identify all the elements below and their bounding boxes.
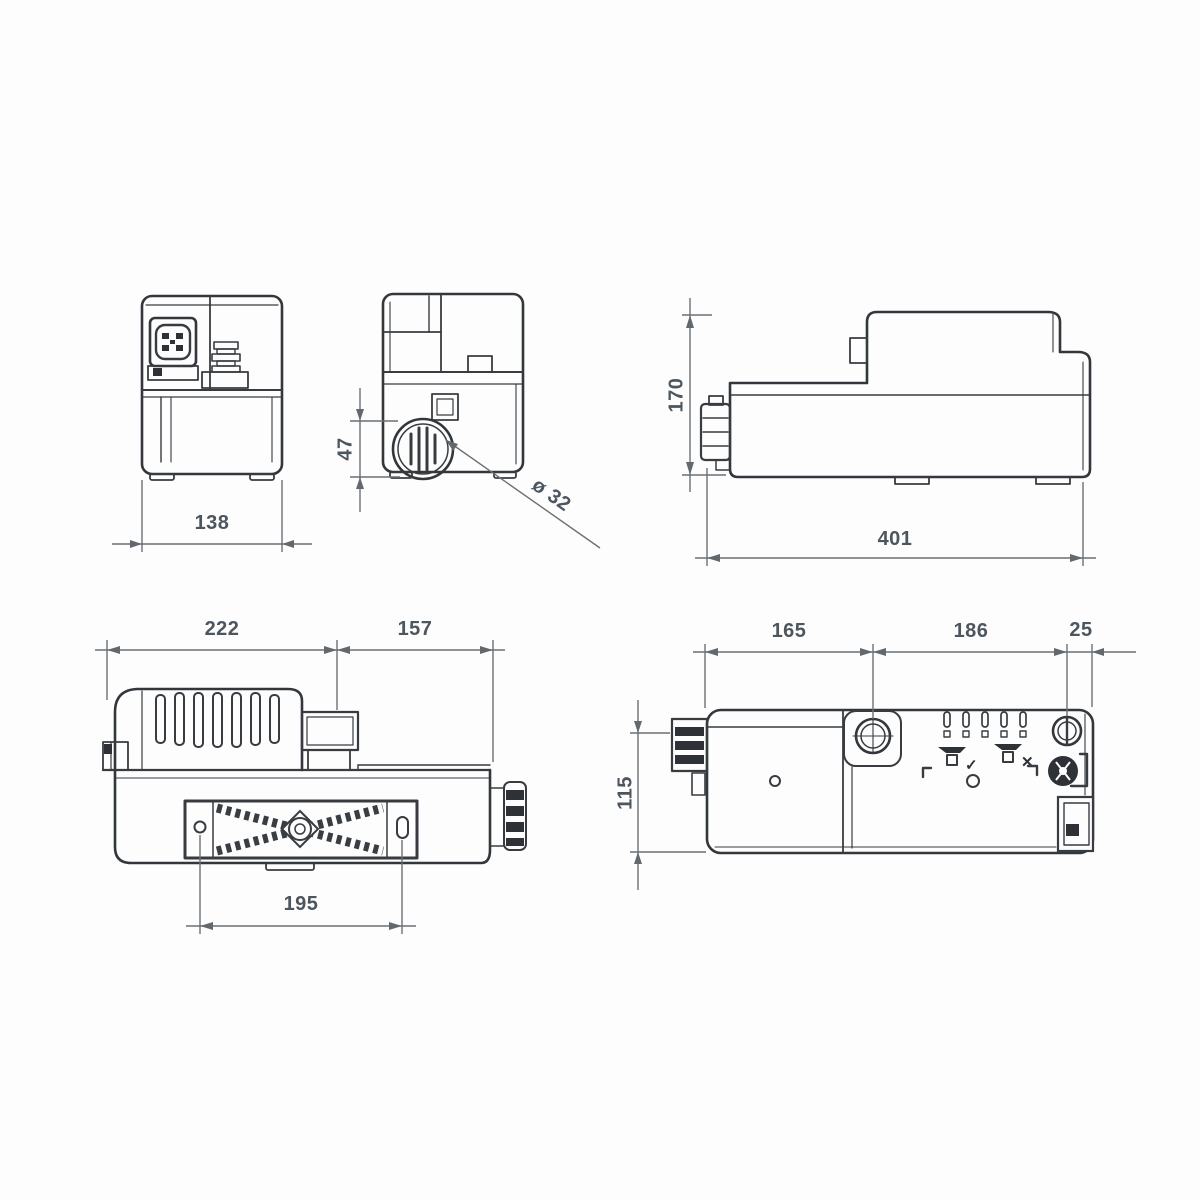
dim-label-motor-length: 222 <box>205 618 240 640</box>
view-side: 170 401 <box>665 298 1096 566</box>
side-hose-connector-icon <box>701 396 730 470</box>
view-top: ✓ ✕ <box>614 619 1136 890</box>
mounting-plate-cross-brace <box>185 801 417 858</box>
dim-label-width: 138 <box>195 512 230 534</box>
dim-inlet-span-47: 47 <box>334 388 400 512</box>
surface-hole <box>967 775 979 787</box>
dim-label-length: 401 <box>878 528 913 550</box>
view-end-power: 138 <box>112 296 312 552</box>
corner-mark-left <box>923 768 931 777</box>
dim-label-inlet-center: 165 <box>772 620 807 642</box>
dim-label-height: 170 <box>665 378 687 413</box>
hand-tool-check-icon: ✓ <box>938 747 978 774</box>
dim-label-depth: 115 <box>614 776 636 810</box>
dim-label-screw-to-edge: 25 <box>1069 619 1092 641</box>
dim-label-tank-length: 157 <box>398 618 433 640</box>
vent-slots <box>944 712 1026 737</box>
inlet-opening-icon <box>853 719 893 753</box>
dim-label-inlet-span: 47 <box>334 437 356 460</box>
view-end-inlet: 47 ø 32 <box>334 294 600 548</box>
view-side-motor: 222 157 195 <box>95 618 526 934</box>
dim-width-138: 138 <box>112 480 312 552</box>
dim-chain-165-186-25: 165 186 25 <box>693 619 1136 719</box>
ribbed-hose-connector-icon <box>490 782 526 850</box>
mounting-slot-right <box>397 817 408 838</box>
inlet-grille-icon <box>393 419 453 479</box>
top-hose-connector-icon <box>672 719 707 795</box>
hose-barb-icon <box>202 342 248 388</box>
dim-label-hole-spacing: 195 <box>284 893 319 915</box>
cooling-ribs <box>156 693 279 747</box>
power-connector-icon <box>148 318 198 380</box>
dim-height-170: 170 <box>665 298 726 492</box>
check-glyph: ✓ <box>965 757 978 774</box>
mounting-hole-left <box>195 822 206 833</box>
dim-label-inlet-to-screw: 186 <box>954 620 989 642</box>
knurled-knob-icon <box>1048 754 1087 786</box>
screw-cap-icon <box>1053 717 1081 745</box>
cross-glyph: ✕ <box>1021 754 1034 771</box>
dim-label-inlet-diameter: ø 32 <box>528 474 575 516</box>
drawing-sheet: 138 47 <box>0 0 1200 1200</box>
lid-hole <box>770 776 780 786</box>
